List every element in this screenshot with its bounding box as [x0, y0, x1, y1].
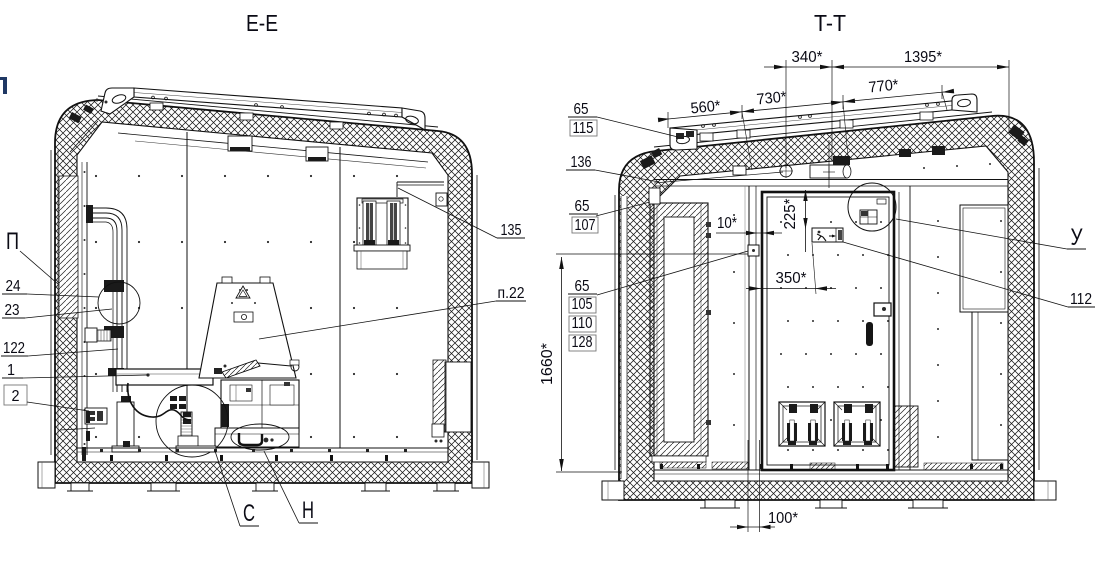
- svg-text:1: 1: [7, 362, 15, 379]
- svg-text:340*: 340*: [792, 49, 823, 66]
- svg-text:110: 110: [572, 315, 593, 332]
- svg-text:Н: Н: [302, 497, 314, 524]
- svg-text:128: 128: [572, 334, 593, 351]
- svg-text:2: 2: [12, 388, 20, 405]
- svg-text:770*: 770*: [868, 77, 900, 97]
- svg-text:10*: 10*: [717, 215, 737, 232]
- svg-text:730*: 730*: [756, 89, 788, 109]
- svg-text:135: 135: [501, 222, 522, 239]
- svg-text:п.22: п.22: [498, 285, 525, 302]
- svg-text:107: 107: [575, 217, 596, 234]
- svg-text:1660*: 1660*: [539, 343, 556, 385]
- svg-text:E-E: E-E: [246, 10, 278, 36]
- svg-text:100*: 100*: [768, 510, 798, 527]
- svg-text:У: У: [1071, 224, 1084, 251]
- svg-text:П: П: [6, 228, 19, 255]
- svg-text:65: 65: [575, 198, 590, 215]
- svg-text:T-T: T-T: [814, 10, 846, 36]
- svg-text:122: 122: [3, 340, 25, 357]
- svg-text:115: 115: [573, 120, 594, 137]
- svg-text:112: 112: [1070, 291, 1092, 308]
- svg-text:105: 105: [572, 296, 593, 313]
- svg-text:225*: 225*: [782, 199, 799, 230]
- svg-text:24: 24: [6, 278, 21, 295]
- svg-text:23: 23: [5, 302, 20, 319]
- svg-text:560*: 560*: [690, 98, 722, 118]
- svg-text:65: 65: [574, 101, 589, 118]
- svg-text:С: С: [243, 500, 255, 527]
- svg-text:1395*: 1395*: [904, 49, 942, 66]
- svg-text:65: 65: [575, 278, 590, 295]
- svg-text:350*: 350*: [776, 270, 807, 287]
- svg-text:136: 136: [571, 154, 592, 171]
